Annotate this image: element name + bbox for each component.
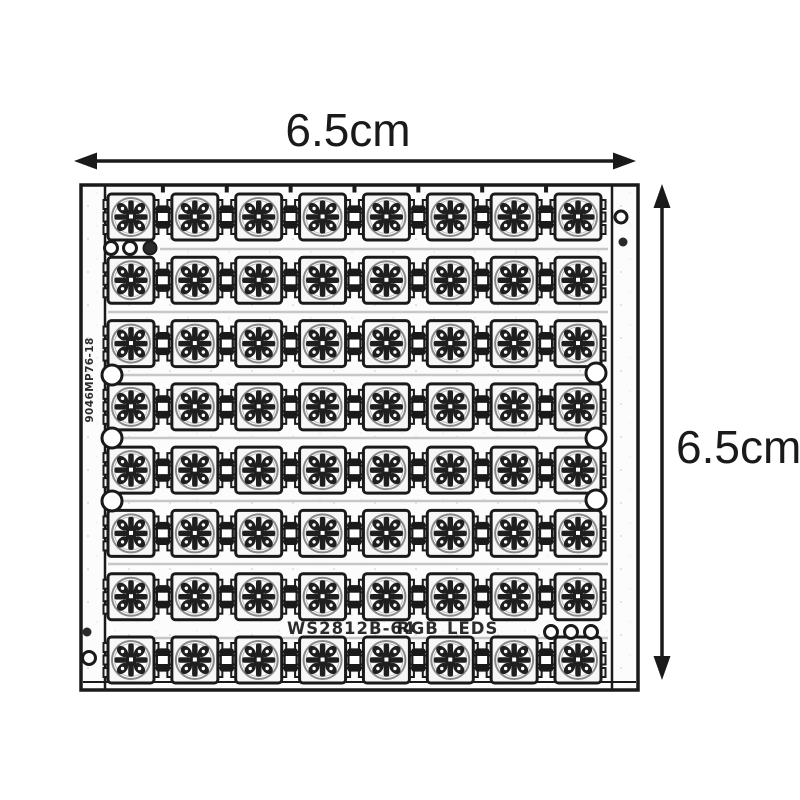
via-mark — [161, 187, 165, 193]
capacitor-0603 — [348, 270, 360, 291]
capacitor-0603 — [157, 333, 169, 354]
capacitor-0603 — [412, 396, 424, 417]
capacitor-0603 — [476, 207, 488, 228]
led-5050 — [550, 384, 605, 430]
right-dimension-annotation: 6.5cm — [654, 184, 800, 680]
led-5050 — [295, 637, 350, 683]
led-5050 — [359, 574, 414, 620]
capacitor-0603 — [348, 207, 360, 228]
led-5050 — [487, 194, 542, 240]
led-5050 — [359, 257, 414, 303]
led-5050 — [104, 257, 159, 303]
led-5050 — [550, 447, 605, 493]
led-5050 — [167, 321, 222, 367]
led-5050 — [550, 257, 605, 303]
led-5050 — [231, 257, 286, 303]
product-dimension-figure: 6.5cm 6.5cm — [0, 0, 800, 800]
led-5050 — [167, 384, 222, 430]
capacitor-0603 — [221, 270, 233, 291]
top-dimension-annotation: 6.5cm — [74, 104, 636, 170]
capacitor-0603 — [476, 270, 488, 291]
pad — [565, 626, 578, 639]
capacitor-0603 — [285, 523, 297, 544]
led-5050 — [231, 447, 286, 493]
via-mark — [289, 187, 293, 193]
pad — [615, 211, 627, 223]
capacitor-0603 — [285, 207, 297, 228]
capacitor-0603 — [221, 586, 233, 607]
led-5050 — [295, 574, 350, 620]
led-5050 — [550, 321, 605, 367]
capacitor-0603 — [540, 460, 552, 481]
led-5050 — [487, 257, 542, 303]
width-dimension-label: 6.5cm — [285, 104, 410, 156]
silkscreen-leds-text: LEDS — [447, 619, 498, 638]
capacitor-0603 — [157, 396, 169, 417]
led-5050 — [167, 257, 222, 303]
capacitor-0603 — [157, 586, 169, 607]
led-5050 — [295, 194, 350, 240]
capacitor-0603 — [412, 270, 424, 291]
mounting-hole — [586, 363, 606, 383]
via-mark — [480, 187, 484, 193]
capacitor-0603 — [476, 523, 488, 544]
pad-filled — [144, 242, 157, 255]
led-5050 — [359, 447, 414, 493]
capacitor-0603 — [412, 333, 424, 354]
pcb-diagram-svg: 6.5cm 6.5cm — [0, 0, 800, 800]
led-5050 — [359, 637, 414, 683]
capacitor-0603 — [412, 586, 424, 607]
capacitor-0603 — [540, 270, 552, 291]
capacitor-0603 — [540, 207, 552, 228]
capacitor-0603 — [476, 586, 488, 607]
led-5050 — [487, 321, 542, 367]
capacitor-0603 — [157, 650, 169, 671]
pad — [585, 626, 598, 639]
mounting-hole — [102, 365, 122, 385]
led-5050 — [104, 510, 159, 556]
led-5050 — [487, 637, 542, 683]
capacitor-0603 — [348, 396, 360, 417]
capacitor-0603 — [348, 586, 360, 607]
led-5050 — [423, 637, 478, 683]
mounting-hole — [102, 428, 122, 448]
capacitor-0603 — [221, 333, 233, 354]
mounting-hole — [102, 491, 122, 511]
led-5050 — [423, 194, 478, 240]
arrow-left-icon — [74, 153, 97, 170]
led-5050 — [295, 257, 350, 303]
pad — [545, 626, 558, 639]
led-5050 — [423, 384, 478, 430]
capacitor-0603 — [221, 460, 233, 481]
capacitor-0603 — [221, 650, 233, 671]
capacitor-0603 — [348, 650, 360, 671]
led-5050 — [295, 510, 350, 556]
pad — [124, 242, 137, 255]
led-5050 — [423, 510, 478, 556]
capacitor-0603 — [221, 523, 233, 544]
led-5050 — [231, 574, 286, 620]
led-5050 — [104, 384, 159, 430]
led-5050 — [295, 447, 350, 493]
led-5050 — [487, 384, 542, 430]
led-5050 — [104, 574, 159, 620]
led-5050 — [423, 257, 478, 303]
capacitor-0603 — [476, 650, 488, 671]
height-dimension-label: 6.5cm — [676, 421, 800, 473]
capacitor-0603 — [221, 207, 233, 228]
capacitor-0603 — [285, 396, 297, 417]
silkscreen-rgb-text: RGB — [397, 619, 439, 638]
led-5050 — [167, 637, 222, 683]
capacitor-0603 — [540, 586, 552, 607]
led-5050 — [550, 510, 605, 556]
via-mark — [416, 187, 420, 193]
capacitor-0603 — [412, 650, 424, 671]
capacitor-0603 — [285, 270, 297, 291]
arrow-right-icon — [613, 153, 636, 170]
led-5050 — [167, 574, 222, 620]
led-5050 — [423, 574, 478, 620]
led-5050 — [231, 384, 286, 430]
led-5050 — [295, 384, 350, 430]
led-5050 — [167, 194, 222, 240]
pad-filled — [83, 628, 92, 637]
capacitor-0603 — [285, 650, 297, 671]
led-5050 — [295, 321, 350, 367]
capacitor-0603 — [540, 396, 552, 417]
capacitor-0603 — [221, 396, 233, 417]
capacitor-0603 — [285, 333, 297, 354]
capacitor-0603 — [540, 523, 552, 544]
capacitor-0603 — [348, 523, 360, 544]
led-5050 — [487, 447, 542, 493]
capacitor-0603 — [412, 207, 424, 228]
capacitor-0603 — [348, 333, 360, 354]
led-5050 — [550, 194, 605, 240]
pad — [83, 652, 96, 665]
capacitor-0603 — [157, 460, 169, 481]
mounting-hole — [586, 428, 606, 448]
capacitor-0603 — [285, 586, 297, 607]
arrow-up-icon — [654, 184, 671, 208]
led-5050 — [423, 321, 478, 367]
led-5050 — [231, 637, 286, 683]
arrow-down-icon — [654, 656, 671, 680]
via-mark — [225, 187, 229, 193]
led-5050 — [104, 447, 159, 493]
pcb-board: WS2812B-64 RGB LEDS 9046MP76-18 — [81, 185, 638, 690]
led-5050 — [359, 194, 414, 240]
silkscreen-side-marking: 9046MP76-18 — [84, 337, 96, 422]
capacitor-0603 — [476, 460, 488, 481]
led-5050 — [167, 447, 222, 493]
pad — [105, 242, 118, 255]
capacitor-0603 — [476, 333, 488, 354]
led-5050 — [550, 637, 605, 683]
led-5050 — [104, 637, 159, 683]
led-5050 — [359, 321, 414, 367]
capacitor-0603 — [540, 333, 552, 354]
capacitor-0603 — [157, 523, 169, 544]
led-5050 — [550, 574, 605, 620]
led-5050 — [231, 510, 286, 556]
mounting-hole — [586, 490, 606, 510]
capacitor-0603 — [348, 460, 360, 481]
led-5050 — [104, 321, 159, 367]
led-5050 — [231, 321, 286, 367]
led-5050 — [231, 194, 286, 240]
led-5050 — [487, 574, 542, 620]
led-5050 — [487, 510, 542, 556]
via-mark — [352, 187, 356, 193]
capacitor-0603 — [157, 270, 169, 291]
capacitor-0603 — [412, 523, 424, 544]
capacitor-0603 — [540, 650, 552, 671]
capacitor-0603 — [285, 460, 297, 481]
capacitor-0603 — [157, 207, 169, 228]
led-5050 — [423, 447, 478, 493]
pad-filled — [619, 238, 628, 247]
led-5050 — [359, 384, 414, 430]
led-5050 — [359, 510, 414, 556]
capacitor-0603 — [476, 396, 488, 417]
via-mark — [544, 187, 548, 193]
led-5050 — [167, 510, 222, 556]
led-5050 — [104, 194, 159, 240]
capacitor-0603 — [412, 460, 424, 481]
